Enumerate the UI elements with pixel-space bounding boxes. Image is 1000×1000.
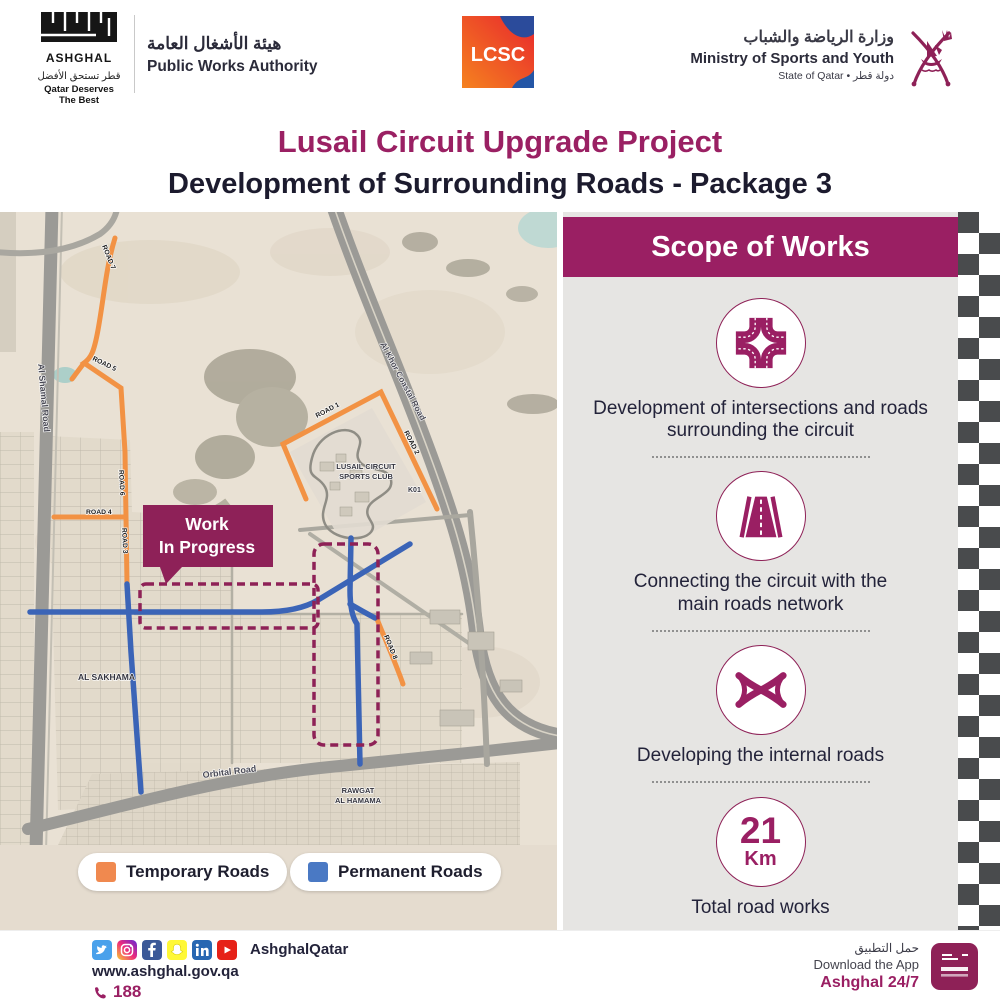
scope-item-2-circle <box>716 471 806 561</box>
facebook-icon <box>142 940 162 960</box>
phone-icon <box>92 985 107 1000</box>
ministry-name-arabic: وزارة الرياضة والشباب <box>690 27 894 47</box>
interchange-icon <box>732 661 790 719</box>
brand-divider <box>134 15 135 93</box>
ashghal-logo: ASHGHAL قطر تستحق الأفضل Qatar Deserves … <box>36 12 318 106</box>
ashghal-mark-icon <box>36 12 122 45</box>
lcsc-logo-icon: LCSC <box>462 16 534 88</box>
total-distance-value: 21 <box>740 813 781 848</box>
ministry-state-line: State of Qatar • دولة قطر <box>690 70 894 82</box>
ministry-logo: وزارة الرياضة والشباب Ministry of Sports… <box>690 20 958 88</box>
map-label-road4: ROAD 4 <box>86 509 112 516</box>
ashghal-tagline-arabic: قطر تستحق الأفضل <box>36 71 122 82</box>
website-url: www.ashghal.gov.qa <box>92 963 348 980</box>
youtube-icon <box>217 940 237 960</box>
dotted-divider <box>652 781 870 783</box>
main-content: Al Shamal Road Al Khor Coastal Road Orbi… <box>0 212 1000 930</box>
highway-icon <box>732 487 790 545</box>
phone-row: 188 <box>92 982 348 1000</box>
ministry-name-english: Ministry of Sports and Youth <box>690 50 894 67</box>
total-distance-badge: 21 Km <box>716 797 806 887</box>
legend-swatch-temporary <box>96 862 116 882</box>
map-label-road3: ROAD 3 <box>120 528 128 554</box>
page-title: Lusail Circuit Upgrade Project <box>0 124 1000 160</box>
ashghal-name-arabic: هيئة الأشغال العامة <box>147 34 318 54</box>
scope-item-4-text: Total road works <box>691 897 829 919</box>
lcsc-label: LCSC <box>471 44 525 66</box>
app-icon <box>931 943 978 990</box>
map-label-circuit-2: SPORTS CLUB <box>339 472 393 481</box>
satellite-map: Al Shamal Road Al Khor Coastal Road Orbi… <box>0 212 557 845</box>
total-distance-unit: Km <box>740 848 781 871</box>
legend: Temporary Roads Permanent Roads <box>0 853 557 895</box>
app-download-block: حمل التطبيق Download the App Ashghal 24/… <box>813 941 978 992</box>
phone-number: 188 <box>113 982 141 1000</box>
instagram-icon <box>117 940 137 960</box>
page-subtitle: Development of Surrounding Roads - Packa… <box>0 168 1000 201</box>
snapchat-icon <box>167 940 187 960</box>
ashghal-tagline-english: Qatar Deserves The Best <box>36 84 122 106</box>
map-panel: Al Shamal Road Al Khor Coastal Road Orbi… <box>0 212 557 930</box>
social-handle: AshghalQatar <box>250 941 348 958</box>
app-name: Ashghal 24/7 <box>813 974 919 992</box>
map-label-rawgat-1: RAWGAT <box>342 786 375 795</box>
scope-item-3-text: Developing the internal roads <box>637 745 884 767</box>
scope-header: Scope of Works <box>563 217 958 277</box>
map-label-k01: K01 <box>408 487 421 494</box>
header: ASHGHAL قطر تستحق الأفضل Qatar Deserves … <box>0 0 1000 212</box>
app-download-english: Download the App <box>813 957 919 972</box>
intersection-icon <box>732 314 790 372</box>
dotted-divider <box>652 630 870 632</box>
legend-item-temporary: Temporary Roads <box>78 853 287 891</box>
map-label-circuit-1: LUSAIL CIRCUIT <box>336 462 396 471</box>
social-row: AshghalQatar <box>92 939 348 960</box>
scope-item-2-text: Connecting the circuit with the main roa… <box>628 571 894 615</box>
scope-item-1-text: Development of intersections and roads s… <box>572 398 950 442</box>
poster: ASHGHAL قطر تستحق الأفضل Qatar Deserves … <box>0 0 1000 1000</box>
scope-item-1-circle <box>716 298 806 388</box>
legend-label-temporary: Temporary Roads <box>126 862 269 882</box>
ashghal-wordmark: ASHGHAL <box>36 51 122 65</box>
scope-item-3-circle <box>716 645 806 735</box>
dotted-divider <box>652 456 870 458</box>
legend-item-permanent: Permanent Roads <box>290 853 501 891</box>
twitter-icon <box>92 940 112 960</box>
map-label-rawgat-2: AL HAMAMA <box>335 796 382 805</box>
checkered-flag-strip <box>958 212 1000 930</box>
linkedin-icon <box>192 940 212 960</box>
scope-panel: Scope of Works <box>563 212 958 930</box>
lcsc-logo: LCSC <box>462 16 534 88</box>
legend-swatch-permanent <box>308 862 328 882</box>
app-download-arabic: حمل التطبيق <box>813 941 919 955</box>
ashghal-name-english: Public Works Authority <box>147 58 318 76</box>
callout-line2: In Progress <box>159 537 256 557</box>
legend-label-permanent: Permanent Roads <box>338 862 483 882</box>
footer: AshghalQatar www.ashghal.gov.qa 188 حمل … <box>0 930 1000 1000</box>
map-label-road6: ROAD 6 <box>117 470 125 496</box>
callout-line1: Work <box>185 514 229 534</box>
map-label-al-sakhama: AL SAKHAMA <box>78 672 135 682</box>
qatar-emblem-icon <box>904 20 958 88</box>
